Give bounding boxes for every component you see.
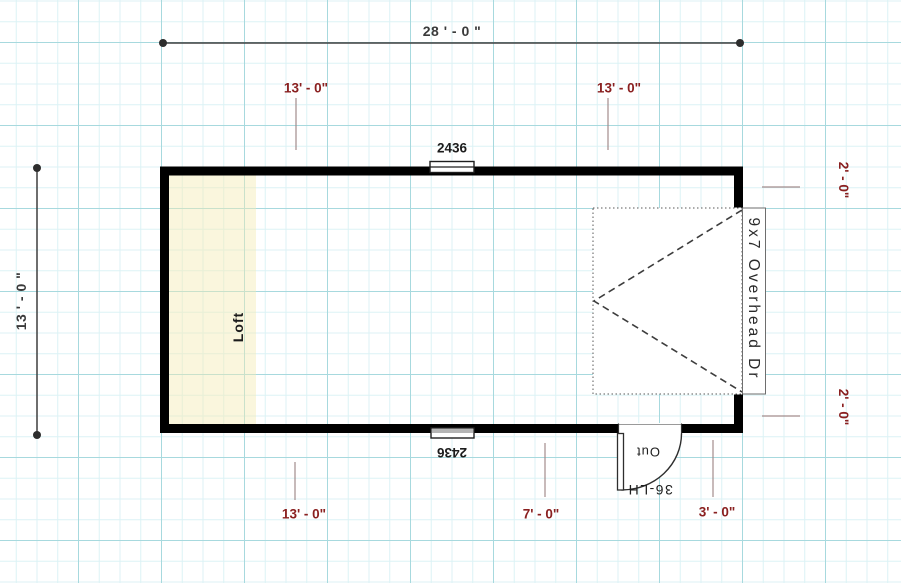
window-bottom-label[interactable]: 2436 bbox=[437, 445, 467, 459]
dim-dot bbox=[33, 164, 41, 172]
dim-span-bottom-left: 13' - 0" bbox=[282, 507, 326, 521]
plan-drawing bbox=[0, 0, 901, 583]
overhead-door-label[interactable]: 9x7 Overhead Dr bbox=[745, 217, 761, 380]
window-bottom-sash bbox=[432, 429, 473, 433]
entry-door-swing-label[interactable]: Out bbox=[636, 446, 660, 459]
dim-dot bbox=[159, 39, 167, 47]
loft-label[interactable]: Loft bbox=[231, 312, 245, 342]
overhead-door-track-area[interactable] bbox=[593, 208, 742, 394]
dim-span-right-top: 2' - 0" bbox=[836, 162, 850, 199]
loft-area[interactable] bbox=[169, 175, 256, 424]
dim-left-total: 13 ' - 0 " bbox=[14, 272, 28, 331]
entry-door-leaf[interactable] bbox=[618, 434, 624, 491]
dim-span-bottom-right: 3' - 0" bbox=[699, 505, 736, 519]
dim-span-top-right: 13' - 0" bbox=[597, 81, 641, 95]
dim-top-total: 28 ' - 0 " bbox=[423, 24, 482, 38]
dim-span-right-bottom: 2' - 0" bbox=[836, 389, 850, 426]
floor-plan-canvas[interactable]: 28 ' - 0 " 13 ' - 0 " 13' - 0" 13' - 0" … bbox=[0, 0, 901, 583]
dim-dot bbox=[33, 431, 41, 439]
dim-span-bottom-mid: 7' - 0" bbox=[523, 507, 560, 521]
dim-dot bbox=[736, 39, 744, 47]
entry-door-label[interactable]: 36-LH bbox=[627, 483, 673, 497]
dim-span-top-left: 13' - 0" bbox=[284, 81, 328, 95]
window-top-label[interactable]: 2436 bbox=[437, 141, 467, 155]
